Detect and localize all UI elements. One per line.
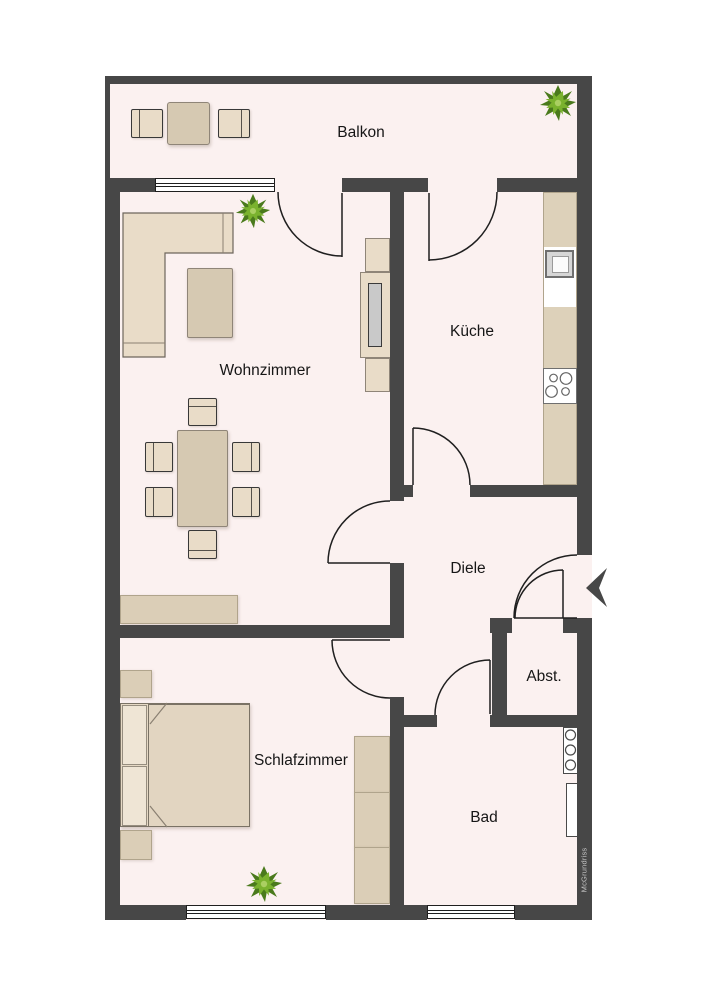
wardrobe-segment-1 — [354, 736, 390, 793]
wall-segment — [470, 485, 577, 497]
dining-chair-left-1 — [145, 442, 173, 472]
sideboard — [120, 595, 238, 624]
bath-appliance — [563, 727, 578, 774]
dining-chair-bottom — [188, 530, 217, 559]
kitchen-stove — [543, 368, 577, 404]
wall-segment — [577, 192, 592, 555]
kitchen-sink-basin — [552, 256, 569, 273]
wall-segment — [404, 485, 413, 497]
room-label-wohnzimmer: Wohnzimmer — [219, 362, 310, 380]
wall-segment — [490, 715, 592, 727]
wall-segment — [105, 905, 186, 920]
floorplan-canvas: Balkon Wohnzimmer Küche Diele Abst. Schl… — [0, 0, 706, 1000]
balcony-chair-left — [131, 109, 163, 138]
wall-segment — [105, 76, 592, 84]
wall-segment — [342, 178, 428, 192]
kitchen-sink — [545, 250, 574, 278]
mattress — [148, 704, 250, 827]
dining-chair-left-2 — [145, 487, 173, 517]
room-label-kueche: Küche — [450, 323, 494, 341]
kitchen-counter — [543, 192, 577, 485]
room-label-balkon: Balkon — [337, 124, 384, 142]
wall-segment — [497, 178, 577, 192]
wall-segment — [105, 625, 402, 638]
pillow-2 — [122, 766, 147, 826]
wall-segment — [390, 697, 404, 905]
wall-segment — [492, 633, 507, 715]
pillow-1 — [122, 705, 147, 765]
room-label-bad: Bad — [470, 809, 498, 827]
double-bed — [120, 703, 250, 827]
dining-table — [177, 430, 228, 527]
balcony-chair-right — [218, 109, 250, 138]
balcony-table — [167, 102, 210, 145]
window-bedroom — [186, 905, 326, 919]
wall-segment — [515, 905, 592, 920]
window-bath — [427, 905, 515, 919]
coffee-table — [187, 268, 233, 338]
room-label-schlafzimmer: Schlafzimmer — [254, 752, 348, 770]
wall-segment — [402, 715, 437, 727]
tv-screen — [368, 283, 382, 347]
room-label-abstellraum: Abst. — [526, 668, 561, 686]
wall-segment — [105, 178, 120, 920]
nightstand-top — [120, 670, 152, 698]
watermark: McGrundriss — [580, 848, 589, 893]
dining-chair-right-2 — [232, 487, 260, 517]
window-balcony — [155, 178, 275, 192]
wall-segment — [563, 618, 592, 633]
nightstand-bottom — [120, 830, 152, 860]
wall-segment — [490, 618, 512, 633]
tv-sideboard-bottom — [365, 358, 390, 392]
dining-chair-right-1 — [232, 442, 260, 472]
wall-segment — [105, 76, 110, 180]
wardrobe-segment-3 — [354, 847, 390, 904]
wardrobe-segment-2 — [354, 792, 390, 848]
wall-segment — [390, 192, 404, 501]
room-label-diele: Diele — [450, 560, 485, 578]
wall-segment — [326, 905, 427, 920]
wall-segment — [577, 76, 592, 192]
tv-sideboard-top — [365, 238, 390, 272]
dining-chair-top — [188, 398, 217, 426]
kitchen-sink-module — [544, 247, 576, 307]
